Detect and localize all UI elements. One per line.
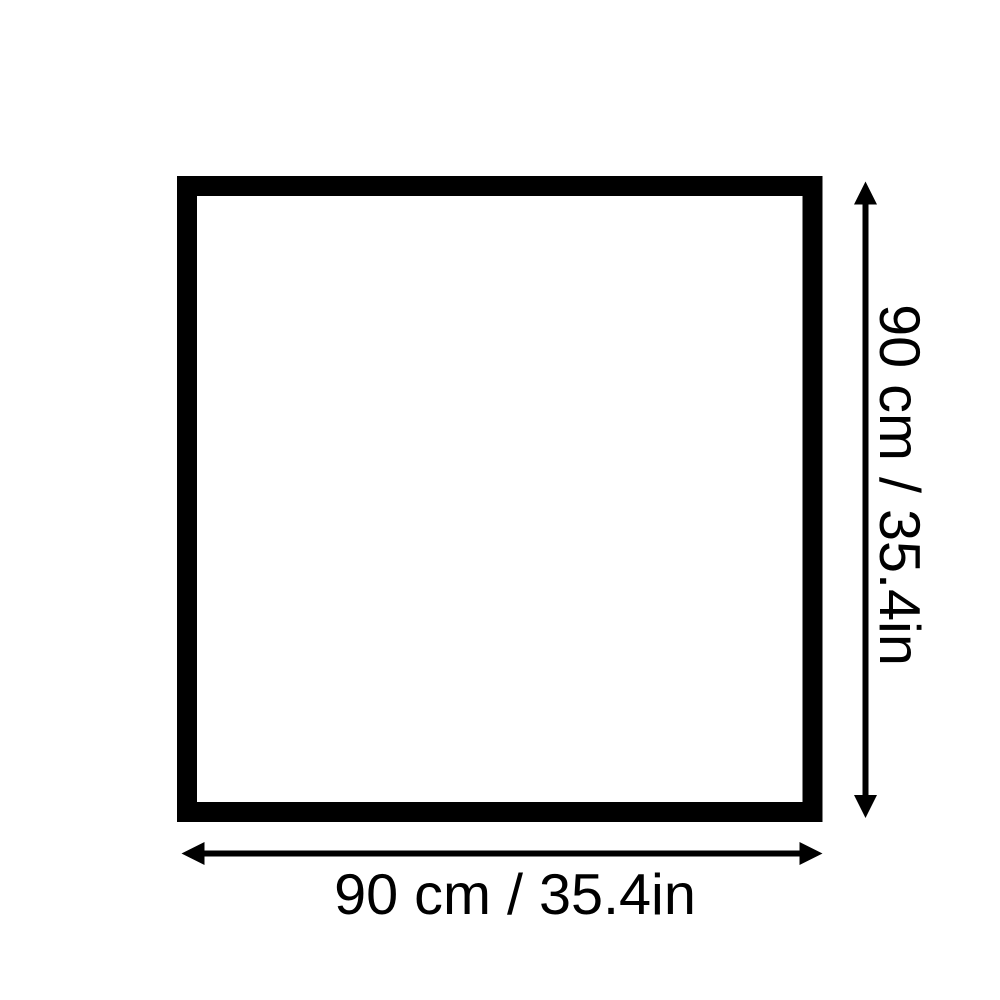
svg-text:90 cm / 35.4in: 90 cm / 35.4in (867, 304, 931, 666)
svg-text:90 cm / 35.4in: 90 cm / 35.4in (334, 863, 696, 927)
